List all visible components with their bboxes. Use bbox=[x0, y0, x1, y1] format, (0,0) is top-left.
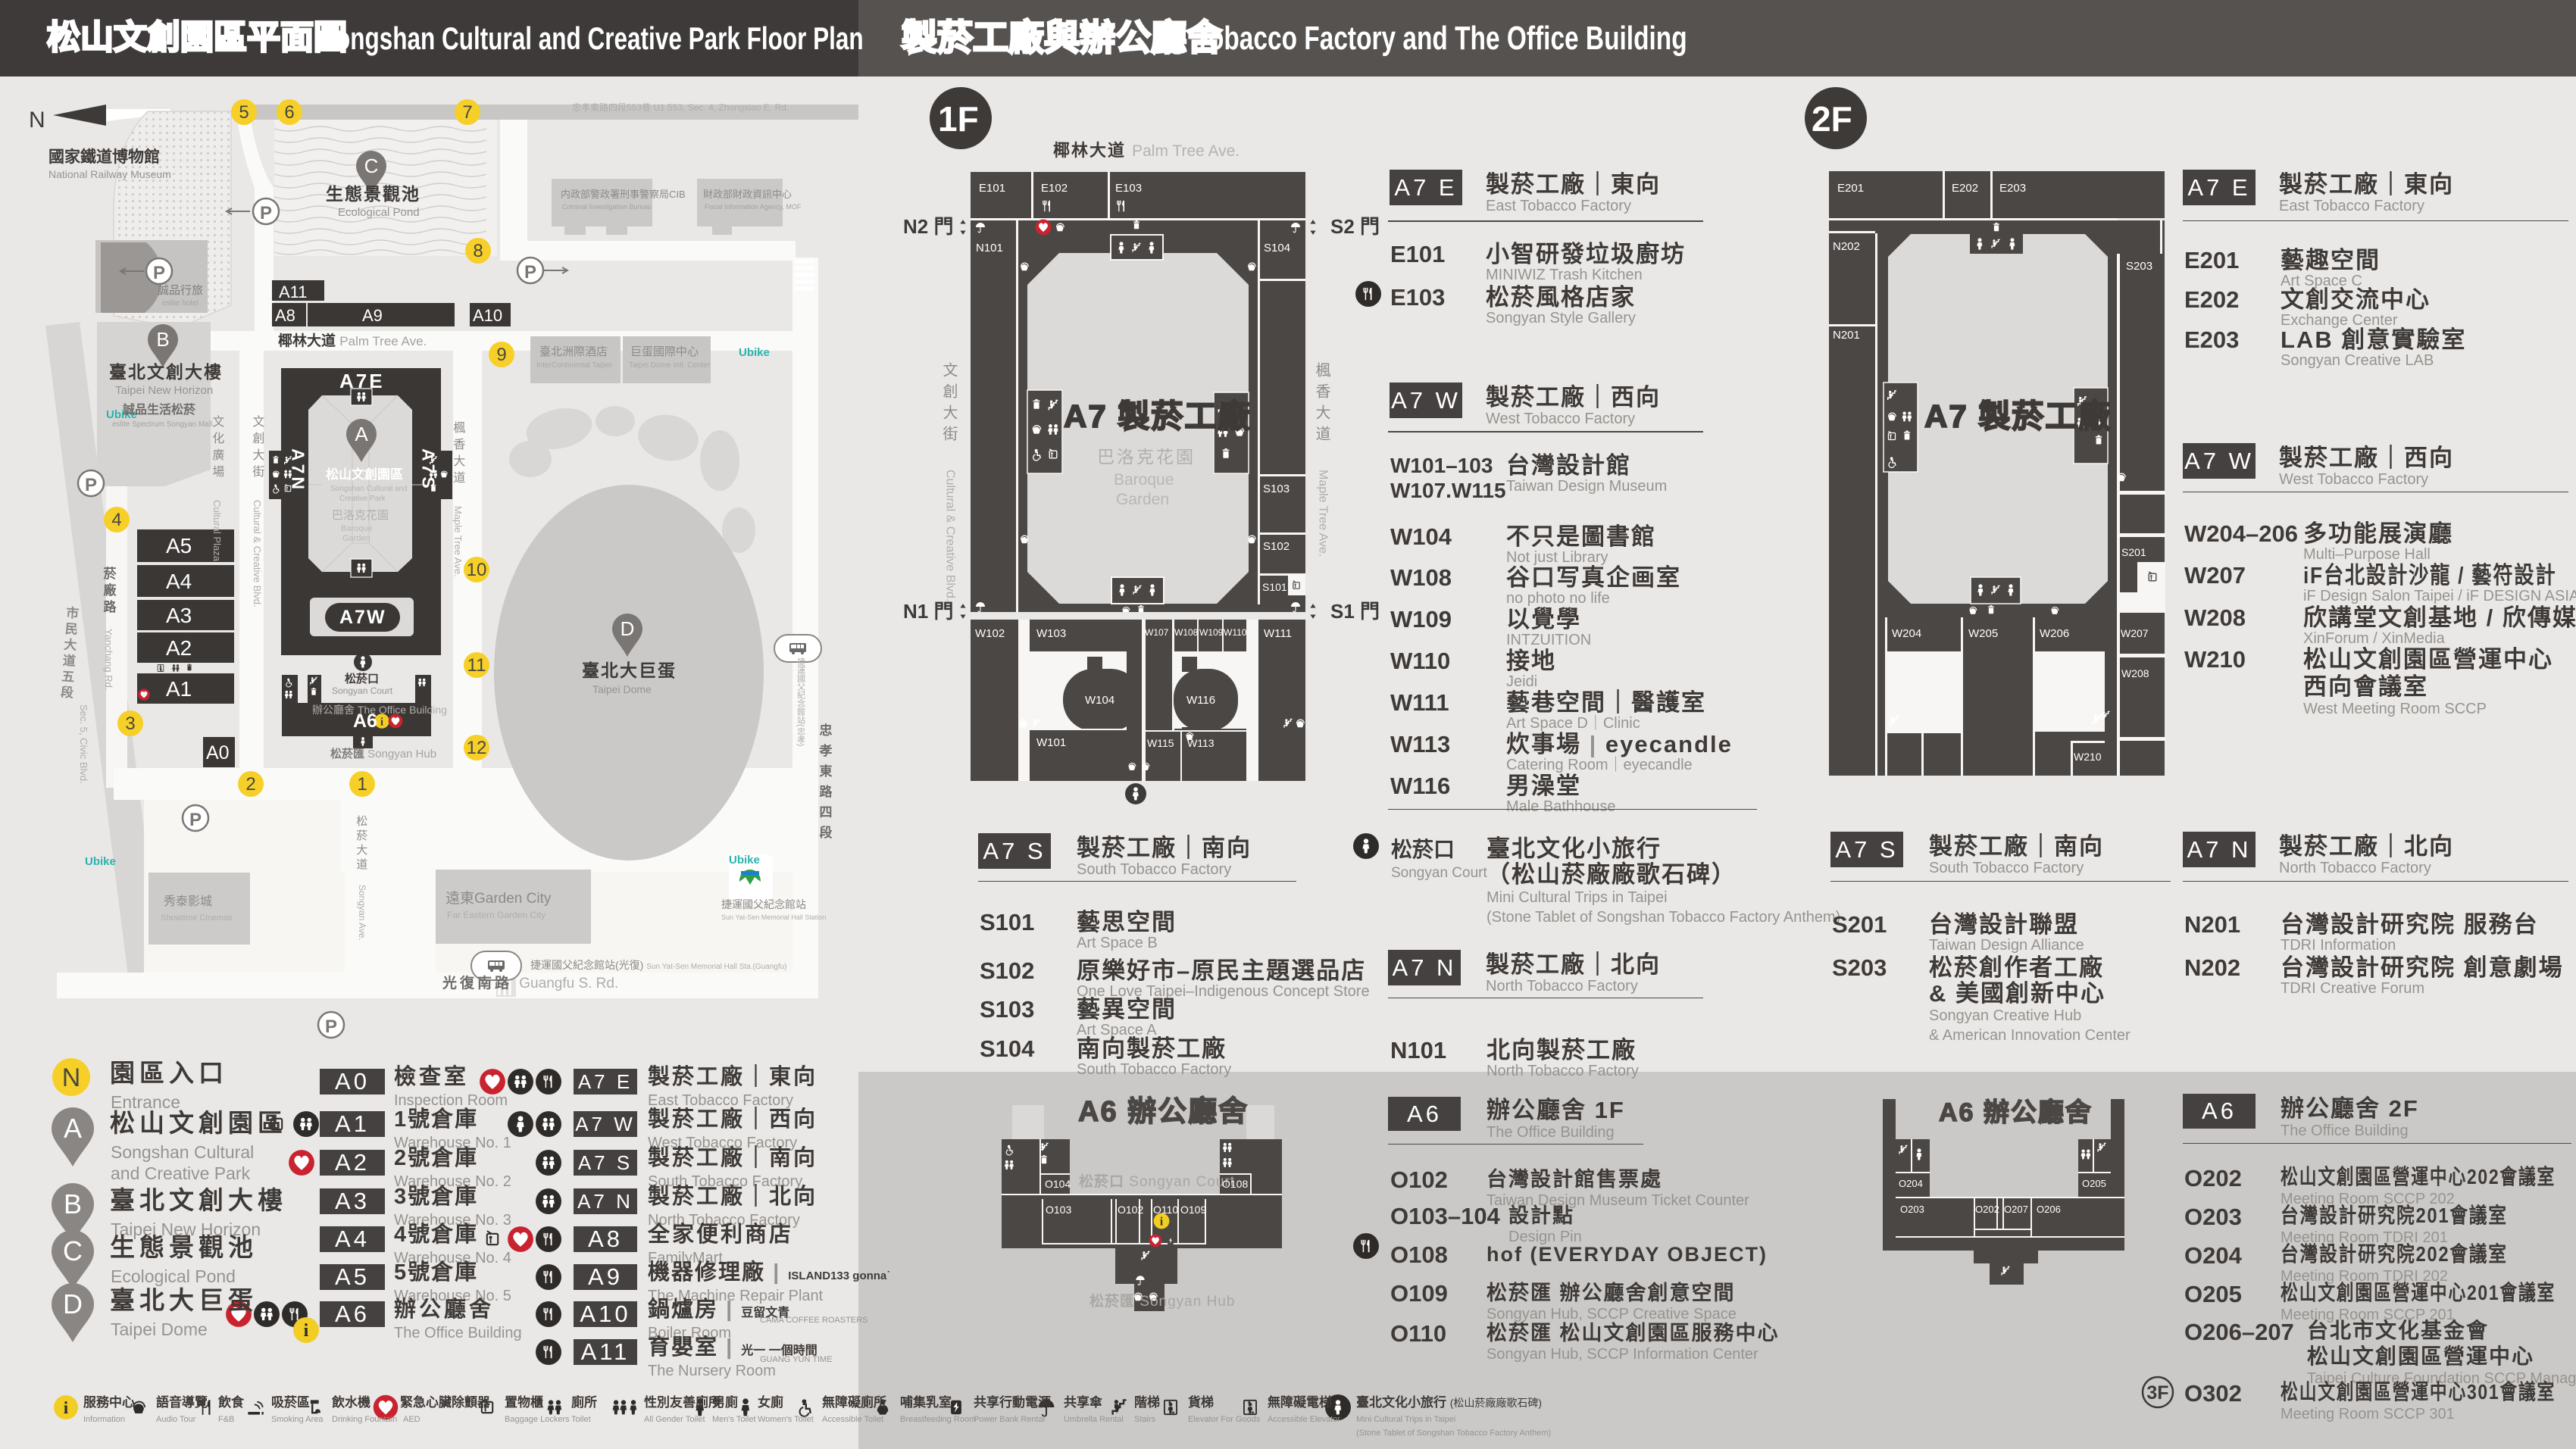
svg-text:11: 11 bbox=[467, 655, 486, 676]
svg-text:6: 6 bbox=[284, 102, 294, 123]
svg-text:P: P bbox=[85, 475, 97, 495]
svg-text:C: C bbox=[364, 155, 379, 177]
svg-text:Ubike: Ubike bbox=[739, 346, 770, 359]
svg-text:N: N bbox=[62, 1063, 81, 1092]
svg-text:P: P bbox=[189, 810, 202, 830]
svg-text:P: P bbox=[524, 262, 536, 283]
svg-text:N: N bbox=[29, 108, 45, 133]
svg-text:Ubike: Ubike bbox=[85, 855, 116, 868]
svg-text:C: C bbox=[63, 1235, 83, 1266]
svg-text:i: i bbox=[304, 1321, 309, 1341]
svg-text:5: 5 bbox=[239, 102, 249, 123]
svg-text:1: 1 bbox=[357, 774, 367, 795]
svg-text:2: 2 bbox=[245, 774, 255, 795]
svg-text:P: P bbox=[153, 263, 165, 283]
svg-text:i: i bbox=[64, 1398, 69, 1417]
svg-text:Ubike: Ubike bbox=[729, 854, 760, 867]
svg-text:9: 9 bbox=[496, 345, 506, 365]
svg-text:D: D bbox=[63, 1288, 83, 1319]
svg-text:P: P bbox=[260, 203, 272, 223]
svg-text:8: 8 bbox=[473, 241, 483, 261]
svg-text:12: 12 bbox=[467, 738, 487, 758]
svg-text:4: 4 bbox=[111, 510, 121, 530]
svg-text:B: B bbox=[156, 328, 169, 351]
svg-text:A: A bbox=[64, 1113, 82, 1144]
svg-text:3: 3 bbox=[125, 714, 135, 734]
svg-text:D: D bbox=[621, 617, 635, 640]
svg-text:10: 10 bbox=[467, 560, 487, 580]
svg-text:3F: 3F bbox=[2146, 1382, 2168, 1404]
svg-text:A: A bbox=[355, 423, 368, 445]
svg-text:P: P bbox=[325, 1016, 337, 1037]
svg-text:B: B bbox=[64, 1188, 82, 1219]
svg-text:7: 7 bbox=[462, 102, 472, 123]
